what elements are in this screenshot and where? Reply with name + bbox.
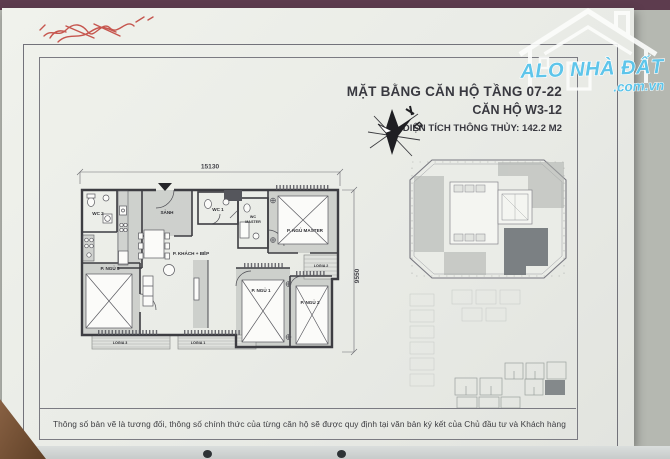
title-line-3: DIỆN TÍCH THÔNG THỦY: 142.2 M2 [318, 123, 562, 134]
room-label-wc2: WC 2 [92, 211, 104, 216]
red-signature-scribble [36, 2, 166, 54]
floor-plan: 15130 9550 [58, 156, 368, 371]
entry-door-marker [158, 183, 172, 191]
room-label-wc-master-2: MASTER [245, 220, 261, 224]
footer-note-bar: Thông số bản vẽ là tương đối, thông số c… [39, 408, 576, 439]
screw-dot-left [203, 450, 212, 458]
room-label-bedroom-2: P. NGỦ 2 [300, 299, 320, 305]
room-label-logia-2: LOGIA 2 [314, 264, 329, 268]
room-label-bedroom-1: P. NGỦ 1 [251, 287, 271, 293]
room-label-hall: SẢNH [160, 209, 174, 215]
screw-dot-right [337, 450, 346, 458]
room-label-bedroom-3: P. NGỦ 3 [100, 265, 120, 271]
title-block: MẶT BẰNG CĂN HỘ TẦNG 07-22 CĂN HỘ W3-12 … [318, 84, 562, 134]
title-line-1: MẶT BẰNG CĂN HỘ TẦNG 07-22 [318, 84, 562, 99]
room-label-logia-3: LOGIA 3 [113, 341, 128, 345]
mini-plan-highlighted-unit [545, 380, 565, 395]
table-edge [0, 446, 670, 459]
logo-domain-text: .com.vn [613, 78, 665, 95]
title-line-2: CĂN HỘ W3-12 [318, 103, 562, 117]
dimension-right-label: 9550 [354, 268, 361, 283]
footer-note-text: Thông số bản vẽ là tương đối, thông số c… [39, 419, 566, 429]
mini-site-plan [400, 286, 600, 412]
photo-of-floorplan-document: { "document": { "title_block": { "line1"… [0, 0, 670, 459]
room-label-wc-master-1: WC [250, 215, 256, 219]
room-label-master-bedroom: P. NGỦ MASTER [287, 227, 324, 233]
north-label: B [411, 119, 425, 133]
room-label-logia-1: LOGIA 1 [191, 341, 206, 345]
building-key-plan [398, 148, 578, 290]
room-label-living: P. KHÁCH + BẾP [173, 250, 209, 256]
room-label-wc1: WC 1 [212, 207, 224, 212]
dimension-top-label: 15130 [201, 164, 220, 171]
